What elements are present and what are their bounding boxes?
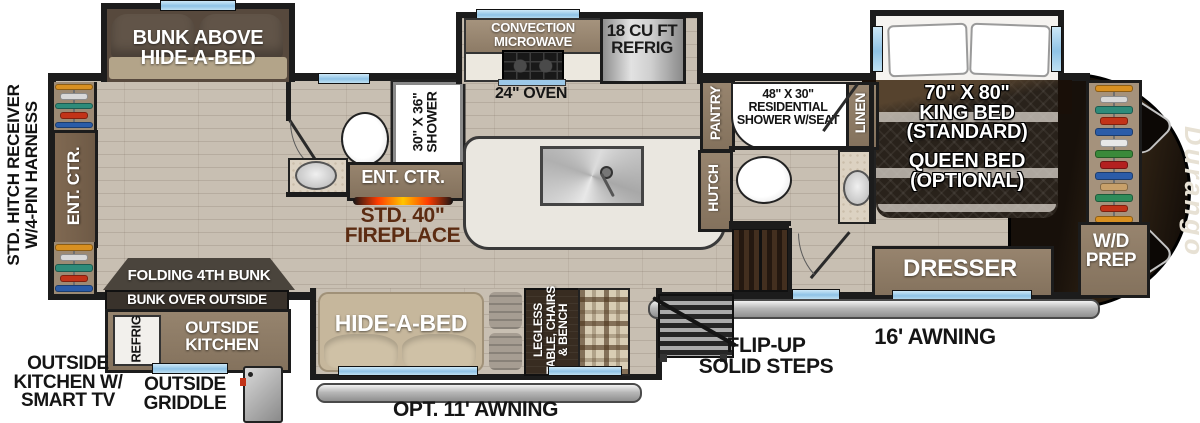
sofa-cushion-left xyxy=(324,334,398,368)
oven-label: 24" OVEN xyxy=(478,85,584,103)
pantry-label: PANTRY xyxy=(707,86,723,140)
hanger-icon xyxy=(60,254,88,261)
awning-rear-label: OPT. 11' AWNING xyxy=(378,398,573,422)
island-sink xyxy=(540,146,644,206)
dinette-window-left xyxy=(338,366,478,376)
king-window-left xyxy=(872,26,883,72)
stairs-step-2 xyxy=(760,228,789,292)
floorplan-canvas: STD. HITCH RECEIVER W/4-PIN HARNESS Dura… xyxy=(0,0,1200,423)
pillow-left xyxy=(887,23,969,78)
hanger-icon xyxy=(1100,205,1128,213)
bath-wall-left xyxy=(286,81,291,121)
hanger-icon xyxy=(55,103,93,109)
dinette-window-right xyxy=(548,366,622,376)
steps-foot-left xyxy=(660,354,667,362)
bedroom-step-wall xyxy=(788,228,792,294)
dresser-label: DRESSER xyxy=(872,255,1048,283)
ent-ctr-label: ENT. CTR. xyxy=(347,167,459,188)
main-toilet xyxy=(736,156,792,204)
rear-ent-ctr-label: ENT. CTR. xyxy=(64,147,84,226)
stairs-step-1 xyxy=(732,228,761,292)
hanger-icon xyxy=(1100,161,1128,169)
awning-main-label: 16' AWNING xyxy=(860,324,1010,350)
hanger-icon xyxy=(1100,183,1128,191)
king-bed-label: 70" X 80" KING BED (STANDARD) xyxy=(876,84,1058,143)
rear-wardrobe-bottom xyxy=(54,242,97,294)
hide-a-bed-label: HIDE-A-BED xyxy=(318,310,484,337)
rear-toilet xyxy=(341,112,389,166)
wall-top-2 xyxy=(289,73,462,81)
hanger-icon xyxy=(1095,85,1133,93)
hanger-icon xyxy=(1100,139,1128,147)
hanger-icon xyxy=(55,285,93,292)
hanger-icon xyxy=(1095,150,1133,158)
dinette-bench xyxy=(578,288,630,376)
hanger-icon xyxy=(1095,128,1133,136)
outside-kitchen-label: OUTSIDE KITCHEN xyxy=(163,319,281,353)
bunk-slide-window xyxy=(160,0,236,11)
rear-shower-label: 30" X 36" SHOWER xyxy=(411,91,440,152)
stairs-landing-edge xyxy=(729,224,789,229)
dinette-chair-1 xyxy=(489,292,522,329)
griddle-knob-2 xyxy=(248,372,253,377)
outside-griddle-label: OUTSIDE GRIDDLE xyxy=(132,376,238,413)
nightstand-right xyxy=(1058,80,1072,114)
hanger-icon xyxy=(60,112,88,118)
king-slide xyxy=(870,10,1064,82)
wd-prep-label: W/D PREP xyxy=(1078,232,1144,270)
pillow-right xyxy=(969,23,1051,78)
rear-sink xyxy=(295,161,337,190)
dinette-chair-2 xyxy=(489,333,522,370)
bath-wall-bottom xyxy=(286,192,348,197)
hanger-icon xyxy=(55,244,93,251)
king-blanket-band-3 xyxy=(878,204,1056,212)
main-sink xyxy=(843,170,872,206)
hanger-icon xyxy=(55,122,93,128)
hanger-icon xyxy=(55,264,93,271)
bedroom-wardrobe xyxy=(1086,80,1142,228)
outside-kitchen-note: OUTSIDE KITCHEN W/ SMART TV xyxy=(4,355,132,411)
cooktop xyxy=(502,50,564,82)
steps-label: FLIP-UP SOLID STEPS xyxy=(690,336,842,377)
hutch-label: HUTCH xyxy=(705,164,721,212)
fireplace-label: STD. 40" FIREPLACE xyxy=(320,206,485,246)
microwave-label: CONVECTION MICROWAVE xyxy=(464,21,602,48)
folding-bunk-label: FOLDING 4TH BUNK xyxy=(103,267,295,284)
king-window-right xyxy=(1051,26,1062,72)
hanger-icon xyxy=(1100,96,1128,104)
hanger-icon xyxy=(1095,172,1133,180)
hanger-icon xyxy=(55,84,93,90)
sofa-cushion-right xyxy=(402,334,476,368)
hitch-label: STD. HITCH RECEIVER W/4-PIN HARNESS xyxy=(5,75,41,275)
griddle-knob xyxy=(240,378,246,386)
hanger-icon xyxy=(1095,106,1133,114)
bunk-slide-label: BUNK ABOVE HIDE-A-BED xyxy=(101,28,295,68)
hanger-icon xyxy=(1100,117,1128,125)
outside-kitchen-window xyxy=(152,363,228,374)
refrig-label: 18 CU FT REFRIG xyxy=(600,22,684,56)
rear-wardrobe-top xyxy=(54,82,97,130)
hanger-icon xyxy=(60,93,88,99)
main-bath-wall-right xyxy=(869,82,874,224)
queen-bed-label: QUEEN BED (OPTIONAL) xyxy=(876,152,1058,191)
hanger-icon xyxy=(60,275,88,282)
dinette-table-label: LEGLESS TABLE, CHAIRS & BENCH xyxy=(532,286,570,374)
hanger-icon xyxy=(1095,194,1133,202)
brand-logo: Durango xyxy=(1178,122,1200,262)
window-top-wall xyxy=(318,73,370,84)
linen-label: LINEN xyxy=(852,93,868,134)
